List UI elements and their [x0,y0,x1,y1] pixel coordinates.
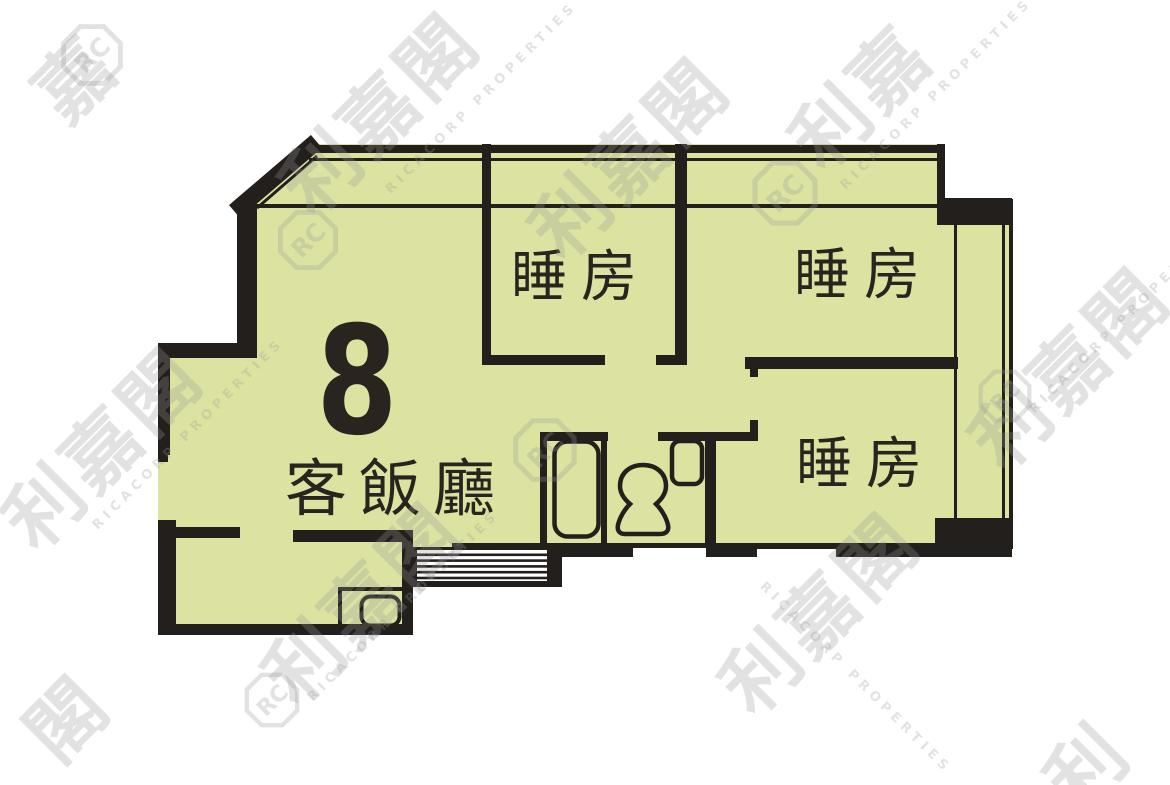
bedroom1-left-wall [482,144,491,365]
bottom-window2-gap [757,549,836,557]
left-wall-upper [237,200,257,348]
louvre-line [417,571,547,574]
window-sill-line [255,204,939,208]
living-bottom-wall [293,530,413,542]
right-window-line-outer [1009,199,1013,549]
bathroom-divider-wall [601,439,607,545]
left-wall-mid [158,358,170,455]
bedroom3-door-jamb-top [750,369,758,377]
floorplan-image: 8 客飯廳 睡房 睡房 睡房 利嘉閣 利嘉閣 利嘉閣 利嘉閣 利嘉閣 利嘉閣 利… [0,0,1170,785]
bottom-window1-line [633,543,706,547]
top-window-line [309,158,940,161]
bottom-right-pillar [935,518,1012,546]
bathroom-left-wall [540,432,547,545]
kitchen-top-wall [168,527,240,538]
living-bottom-window-line [452,543,540,547]
room-label-bedroom-top-right: 睡房 [794,243,934,308]
wash-basin-icon [672,441,702,484]
bottom-window1-gap [633,548,706,557]
bedroom1-bottom-wall [482,355,605,365]
bedroom2-bottom-wall [745,357,958,369]
room-label-living-dining: 客飯廳 [285,452,507,525]
floor-area [158,144,1012,635]
louvre-line [417,565,547,568]
bay-window-divider [954,225,957,518]
bedroom1-right-wall [675,144,687,365]
top-right-corner-wall-v [937,144,945,200]
bottom-window2-line [757,544,836,548]
bathroom-right-wall [705,432,716,545]
louvre-line [417,559,547,562]
left-door-jamb [158,455,168,462]
louvre-bottom-border [412,581,562,587]
floorplan-drawing: 8 客飯廳 睡房 睡房 睡房 [0,0,1170,785]
louvre-steps-icon [412,543,562,587]
toilet-icon [618,465,668,534]
top-wall [303,145,945,153]
right-window-line-inner [1002,225,1005,545]
left-step-wall [158,343,257,358]
louvre-line [417,577,547,580]
room-label-bedroom-top-left: 睡房 [511,245,651,310]
room-label-bedroom-bottom-right: 睡房 [796,432,936,497]
louvre-top-border [417,547,547,550]
bedroom1-door-jamb [656,355,687,365]
top-right-corner-block [937,198,1012,225]
louvre-right-border [547,543,562,587]
bathtub-icon [555,442,599,537]
floor-polygon [158,144,1012,635]
louvre-line [417,554,547,557]
unit-number: 8 [316,294,397,469]
